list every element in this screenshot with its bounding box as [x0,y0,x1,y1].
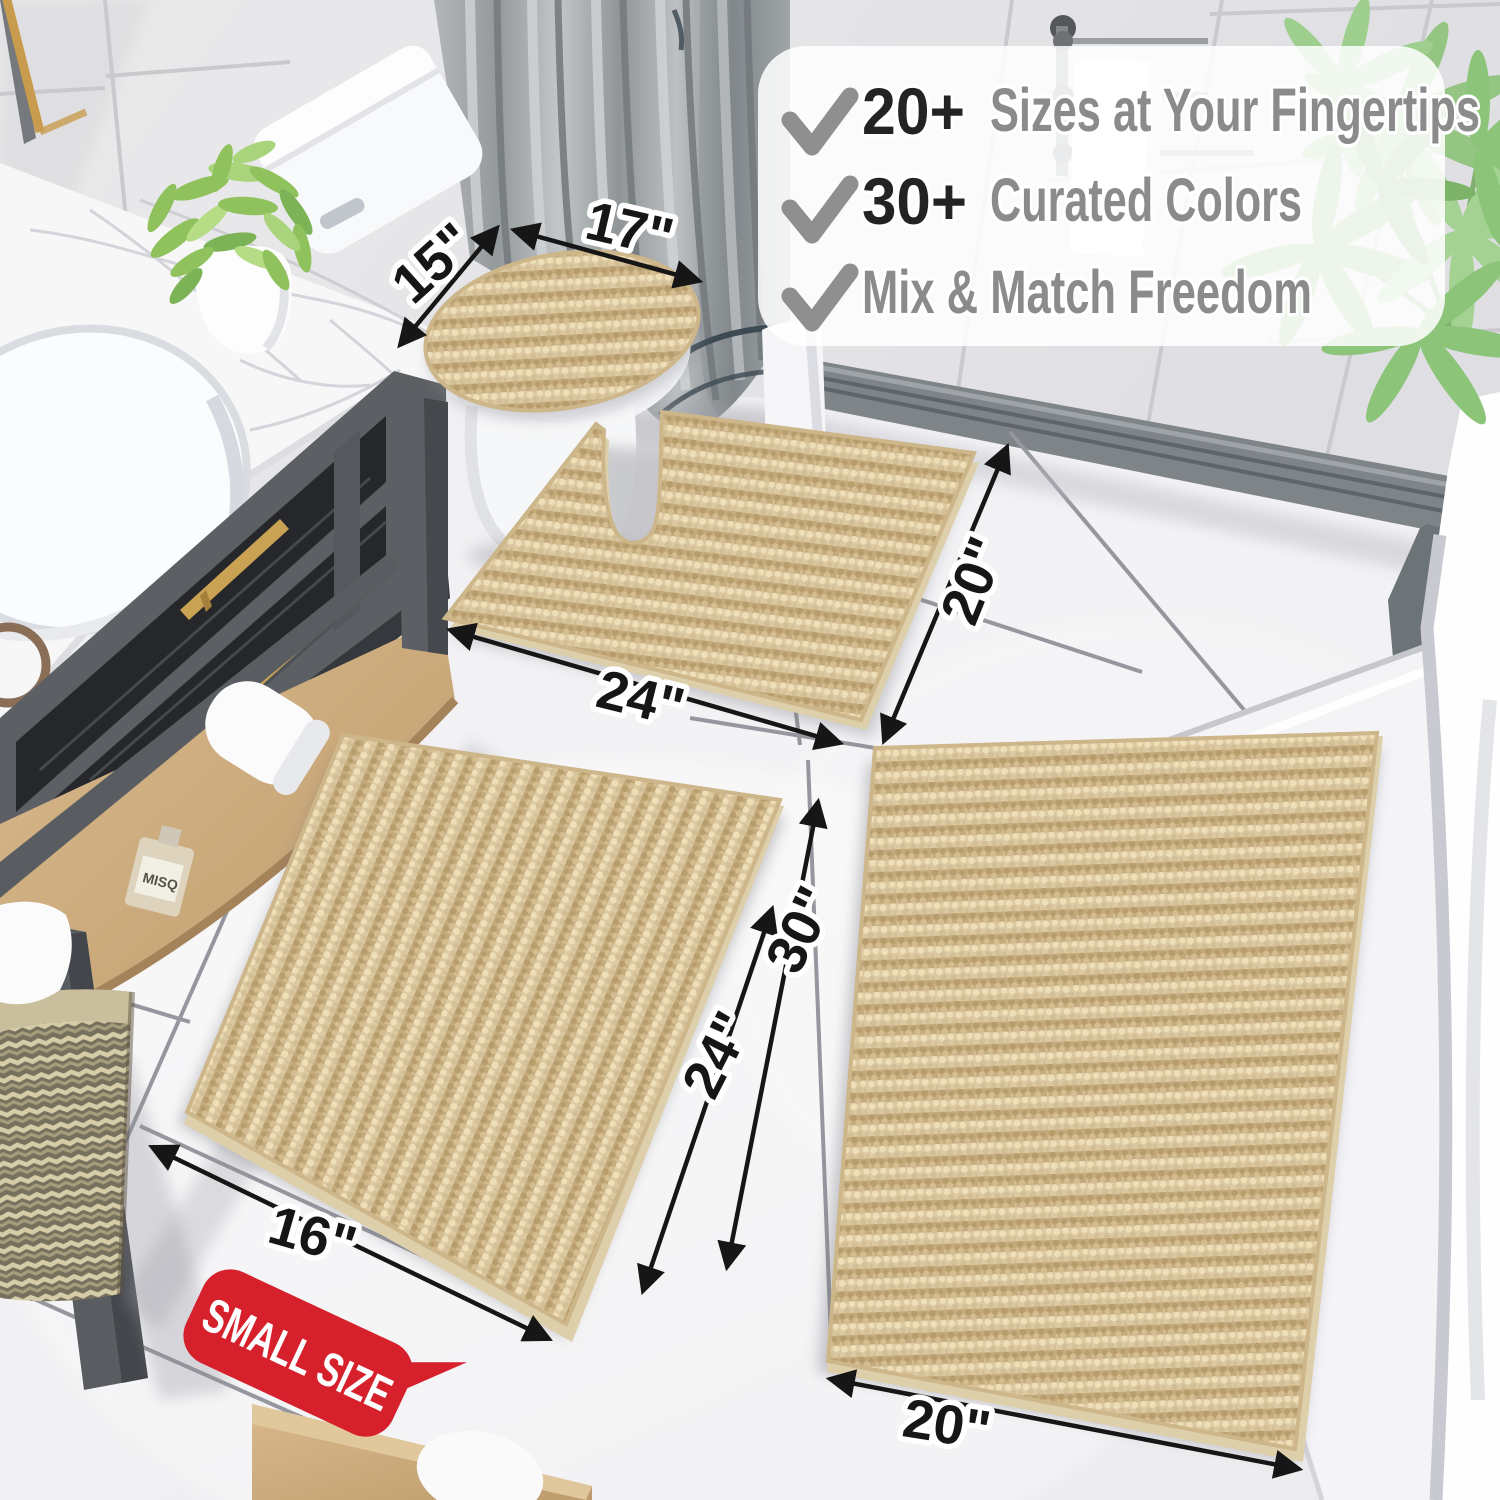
svg-text:20+: 20+ [862,74,965,148]
svg-text:30+: 30+ [862,164,967,238]
svg-text:Sizes at Your Fingertips: Sizes at Your Fingertips [990,76,1480,144]
svg-text:Curated Colors: Curated Colors [990,166,1302,234]
svg-text:Mix & Match Freedom: Mix & Match Freedom [862,258,1312,326]
